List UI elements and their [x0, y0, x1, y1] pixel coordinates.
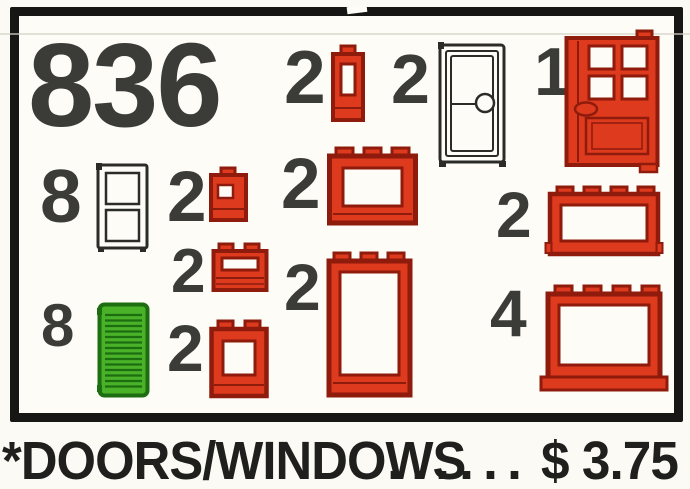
qty-red-door-frame-1x3x4: 2 — [284, 254, 320, 320]
qty-red-window-1x1: 2 — [167, 162, 206, 233]
catalog-page: 836 2 2 1 8 2 2 2 2 2 8 2 4 — [0, 0, 690, 489]
red-window-1x2x1-piece — [211, 242, 269, 293]
qty-red-window-1x3x2: 2 — [281, 149, 320, 220]
qty-red-window-1x1x2: 2 — [284, 40, 325, 115]
red-window-frame-1x4x2-piece — [544, 185, 664, 263]
qty-red-window-1x2x2: 2 — [167, 315, 203, 381]
red-window-1x2x2-piece — [209, 319, 269, 399]
red-door-piece — [564, 29, 663, 173]
red-window-1x3x2-piece — [327, 146, 418, 233]
red-window-1x1-piece — [209, 166, 248, 223]
red-window-1x1x2-piece — [331, 44, 365, 123]
qty-red-window-frame-1x4x2: 2 — [496, 183, 531, 247]
price-leader-dots: ...... — [387, 434, 531, 488]
set-number: 836 — [28, 26, 221, 145]
red-window-frame-1x4x3-piece — [539, 284, 669, 399]
qty-white-door: 2 — [391, 44, 429, 114]
white-door-piece — [436, 41, 511, 168]
qty-green-shutter: 8 — [41, 296, 73, 356]
green-shutter-piece — [96, 301, 151, 399]
qty-red-window-frame-1x4x3: 4 — [490, 280, 526, 346]
white-window-2pane-piece — [94, 161, 151, 253]
red-door-frame-1x3x4-piece — [326, 251, 413, 399]
price-label: $ 3.75 — [541, 434, 678, 488]
qty-red-window-1x2x1: 2 — [171, 241, 204, 303]
qty-white-window-2pane: 8 — [40, 159, 81, 234]
